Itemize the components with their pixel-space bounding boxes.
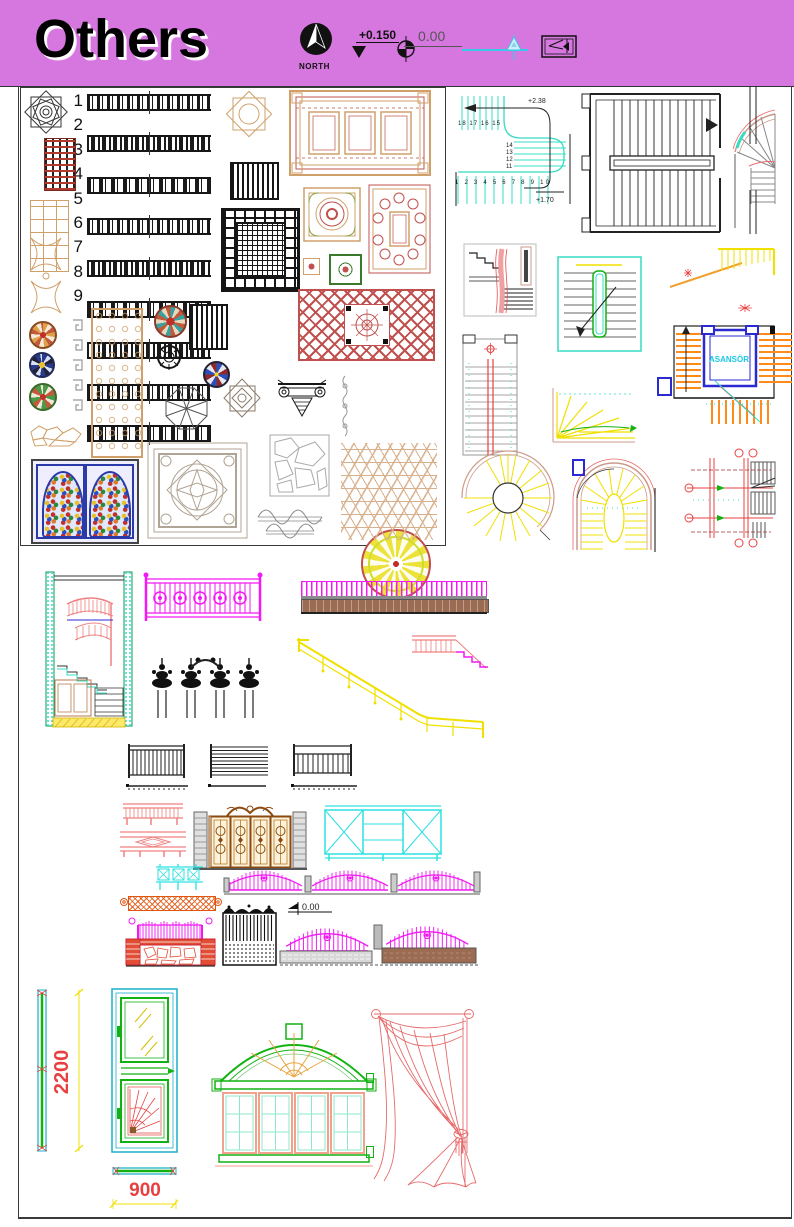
horseshoe-stair-plan bbox=[571, 458, 657, 554]
border-strip-2 bbox=[87, 135, 211, 152]
column-grid-stair-detail bbox=[683, 448, 777, 548]
stone-web-ornament bbox=[269, 434, 330, 497]
pink-stair-railing-detail bbox=[410, 628, 490, 672]
tan-star-ornament bbox=[224, 89, 274, 139]
strip-label-1: 1 bbox=[65, 91, 83, 111]
arrow-box-icon bbox=[541, 34, 579, 60]
green-tile-ornament bbox=[329, 254, 362, 285]
ceiling-plan-ornament bbox=[289, 90, 431, 176]
pink-diamond-fence bbox=[118, 828, 188, 858]
yellow-winder-stair-plan bbox=[545, 386, 637, 444]
arched-magenta-fence-row2 bbox=[280, 921, 478, 967]
run-right-number-13: 13 bbox=[506, 150, 513, 156]
rosette-red bbox=[29, 321, 57, 349]
mosaic-medallion bbox=[154, 305, 187, 338]
door-height-dimension: 2200 bbox=[51, 1037, 75, 1107]
greek-key-strip bbox=[71, 318, 84, 418]
green-reference-mark-2 bbox=[366, 1146, 374, 1158]
north-label: NORTH bbox=[299, 62, 330, 71]
curtain-drawing bbox=[370, 1001, 480, 1191]
sheet-frame-left bbox=[18, 86, 19, 1218]
corridor-wall-lines bbox=[746, 86, 760, 236]
datum-flag-label: 0.00 bbox=[302, 902, 320, 912]
black-fence-vertical-bars bbox=[126, 742, 190, 790]
cad-sheet: Others NORTH +0.150 0.00 bbox=[0, 0, 794, 1227]
elevator-shaft-label: ASANSÖR bbox=[709, 355, 749, 364]
lattice-medallion bbox=[344, 304, 390, 346]
pink-picket-fence bbox=[121, 800, 185, 826]
stair-section-elevation bbox=[45, 570, 133, 730]
spiral-stair-plan bbox=[456, 446, 554, 546]
turquoise-u-stair-plan: +2.38 18 17 16 15 14 13 12 11 1 2 3 4 5 … bbox=[452, 92, 574, 208]
rosette-blue bbox=[29, 352, 55, 378]
north-arrow-icon bbox=[296, 18, 340, 60]
border-strip-5 bbox=[87, 260, 211, 277]
door-head-section-horizontal bbox=[111, 1166, 178, 1176]
ornate-magenta-railing bbox=[143, 572, 263, 624]
scroll-strip-ornament bbox=[336, 374, 354, 440]
red-ornament-panel bbox=[44, 138, 76, 191]
level-zero-label: 0.00 bbox=[418, 28, 445, 44]
orange-fence-finials bbox=[120, 896, 222, 909]
green-reference-mark-1 bbox=[366, 1073, 374, 1083]
door-jamb-section-vertical bbox=[36, 988, 48, 1153]
title-bar: Others NORTH +0.150 0.00 bbox=[0, 0, 794, 87]
octagon-ornament bbox=[164, 386, 209, 431]
strip-label-2: 2 bbox=[65, 115, 83, 135]
level-triangle-icon bbox=[352, 46, 368, 60]
level-lower-label: +1.70 bbox=[536, 197, 554, 204]
arched-magenta-fence-row1 bbox=[224, 864, 480, 896]
iron-finial-posts bbox=[148, 650, 258, 720]
page-title: Others bbox=[34, 12, 208, 66]
large-square-medallion bbox=[146, 441, 249, 540]
red-datum-mark bbox=[737, 303, 753, 313]
run-right-number-14: 14 bbox=[506, 143, 513, 149]
datum-flag-marker: 0.00 bbox=[286, 899, 334, 917]
rosette-green bbox=[29, 383, 57, 411]
yellow-rail-detail bbox=[668, 243, 778, 293]
run-bottom-numbers: 1 2 3 4 5 6 7 8 9 10 bbox=[455, 180, 550, 186]
level-plus-label: +0.150 bbox=[356, 28, 399, 43]
level-zero-underline bbox=[404, 46, 462, 47]
strip-label-9: 9 bbox=[65, 286, 83, 306]
border-strip-3 bbox=[87, 177, 211, 194]
star-rosette-ornament bbox=[23, 89, 69, 135]
magenta-fence-brick-wall bbox=[126, 913, 215, 967]
stone-paving-row bbox=[29, 424, 84, 447]
border-strip-1 bbox=[87, 94, 211, 111]
cyan-cross-brace-fence bbox=[323, 804, 445, 862]
door-elevation bbox=[111, 988, 178, 1153]
oval-ceiling-ornament bbox=[368, 184, 431, 274]
sheet-frame-bottom bbox=[18, 1217, 792, 1219]
striped-square-ornament bbox=[189, 304, 228, 350]
black-gear-medallion bbox=[154, 342, 184, 373]
geometric-star-lattice bbox=[341, 443, 437, 540]
black-wrought-iron-gate bbox=[221, 903, 278, 967]
stair-section-detail bbox=[463, 243, 537, 317]
stained-glass-window bbox=[31, 459, 139, 544]
black-grid-window bbox=[221, 208, 300, 292]
black-ornament-panel bbox=[230, 162, 279, 200]
star-motif-ornament bbox=[221, 376, 264, 421]
ornament-panel: 1 2 3 4 5 6 7 8 9 bbox=[20, 87, 446, 546]
arched-window-elevation bbox=[211, 1023, 377, 1168]
magenta-fence-on-wall bbox=[301, 581, 487, 615]
width-dimension-line bbox=[111, 1198, 178, 1210]
border-strip-4 bbox=[87, 218, 211, 235]
grid-window-inner bbox=[235, 222, 286, 278]
tan-quatrefoil-ornament bbox=[27, 236, 65, 319]
black-fence-mixed-bars bbox=[291, 742, 359, 790]
tan-pierced-panel bbox=[91, 308, 143, 458]
ornate-golden-gate bbox=[193, 803, 307, 870]
level-upper-label: +2.38 bbox=[528, 98, 546, 105]
sheet-frame-right bbox=[791, 86, 792, 1218]
roof-tiles-ornament bbox=[256, 501, 328, 535]
wall-baseline bbox=[301, 612, 487, 614]
height-dimension-line bbox=[75, 988, 83, 1153]
wall-body bbox=[301, 599, 489, 613]
elevator-stair-plan: ASANSÖR bbox=[656, 318, 794, 426]
column-capital-ornament bbox=[276, 378, 328, 419]
black-u-stair-plan bbox=[580, 92, 720, 234]
square-medallion-ornament bbox=[303, 187, 361, 242]
black-fence-horizontal-bars bbox=[208, 742, 272, 790]
cyan-mini-fence-detail bbox=[156, 863, 203, 892]
section-marker-icon bbox=[462, 34, 532, 62]
run-top-numbers: 18 17 16 15 bbox=[458, 121, 501, 127]
red-lattice-panel bbox=[298, 289, 435, 361]
turquoise-framed-stair-plan bbox=[556, 251, 644, 357]
small-tile-ornament bbox=[303, 258, 320, 275]
run-right-number-11: 11 bbox=[506, 164, 513, 170]
gray-stair-plan bbox=[461, 333, 521, 457]
run-right-number-12: 12 bbox=[506, 157, 513, 163]
